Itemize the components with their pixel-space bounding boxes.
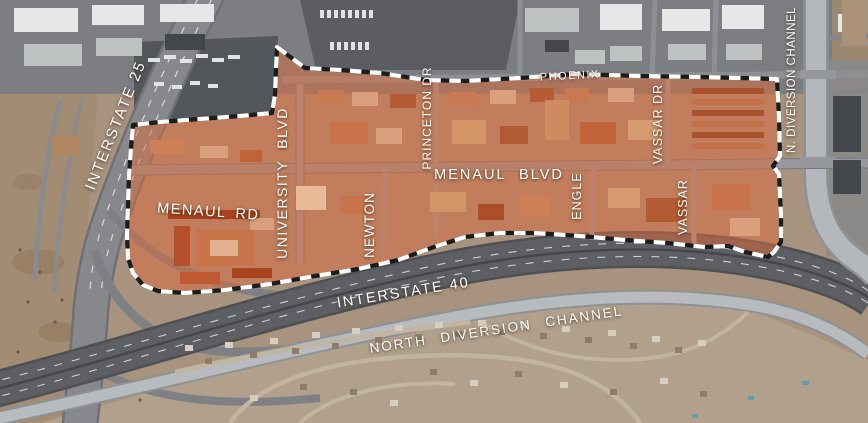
label-menaul-blvd: MENAUL BLVD [434, 167, 564, 183]
label-university-blvd: UNIVERSITY BLVD [274, 107, 290, 259]
grid-street-3 [714, 0, 716, 76]
parking-lot-north [300, 0, 520, 70]
map-canvas: INTERSTATE 25 MENAUL RD UNIVERSITY BLVD … [0, 0, 868, 423]
label-newton: NEWTON [362, 192, 377, 258]
label-engle: ENGLE [570, 172, 584, 219]
label-vassar: VASSAR [676, 179, 690, 235]
label-n-diversion-channel: N. DIVERSION CHANNEL [786, 7, 798, 153]
phoenix-bridge [800, 70, 836, 79]
menaul-bridge [800, 157, 836, 168]
aerial-map: INTERSTATE 25 MENAUL RD UNIVERSITY BLVD … [0, 0, 868, 423]
label-vassar-dr: VASSAR DR [651, 84, 665, 164]
apartment-building [52, 136, 80, 156]
label-princeton-dr: PRINCETON DR [420, 66, 434, 169]
grid-street-2 [652, 0, 655, 77]
